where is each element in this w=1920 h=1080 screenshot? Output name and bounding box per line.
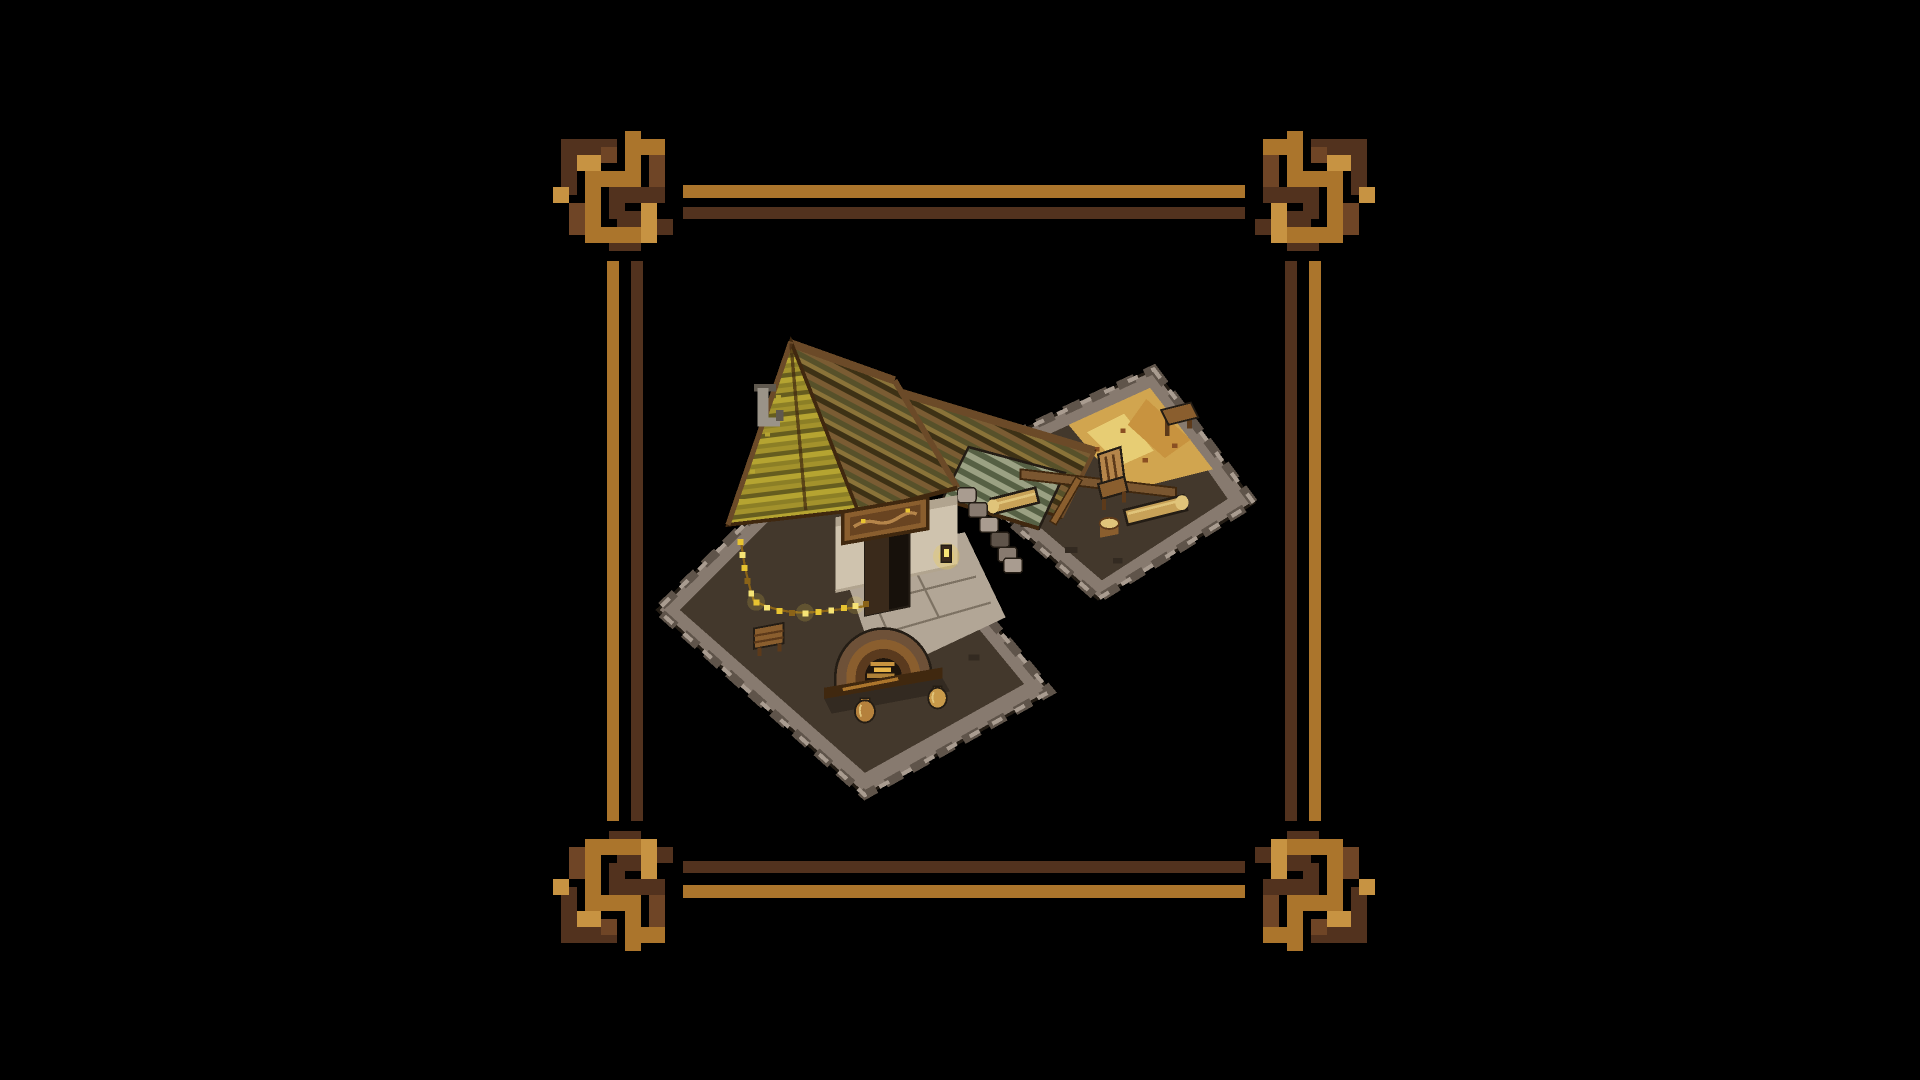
game-scene — [0, 0, 1920, 1080]
doorway — [865, 529, 909, 616]
building-art — [650, 336, 1265, 821]
lantern — [933, 543, 960, 570]
frame-edge-right-dark — [1285, 207, 1297, 873]
frame-edge-left-gold — [607, 185, 619, 898]
frame-edge-top-dark — [631, 207, 1297, 219]
frame-corner-knot-bottom-right — [1245, 821, 1385, 961]
knot-motif — [553, 131, 673, 251]
frame-edge-bottom-dark — [631, 861, 1297, 873]
frame-corner-knot-bottom-left — [543, 821, 683, 961]
frame-edge-right-gold — [1309, 185, 1321, 898]
frame-corner-knot-top-left — [543, 121, 683, 261]
frame-edge-left-dark — [631, 207, 643, 873]
frame-corner-knot-top-right — [1245, 121, 1385, 261]
frame-edge-bottom-gold — [607, 885, 1321, 898]
building[interactable] — [650, 336, 1265, 821]
clay-pot-right — [928, 686, 947, 708]
frame-edge-top-gold — [607, 185, 1321, 198]
